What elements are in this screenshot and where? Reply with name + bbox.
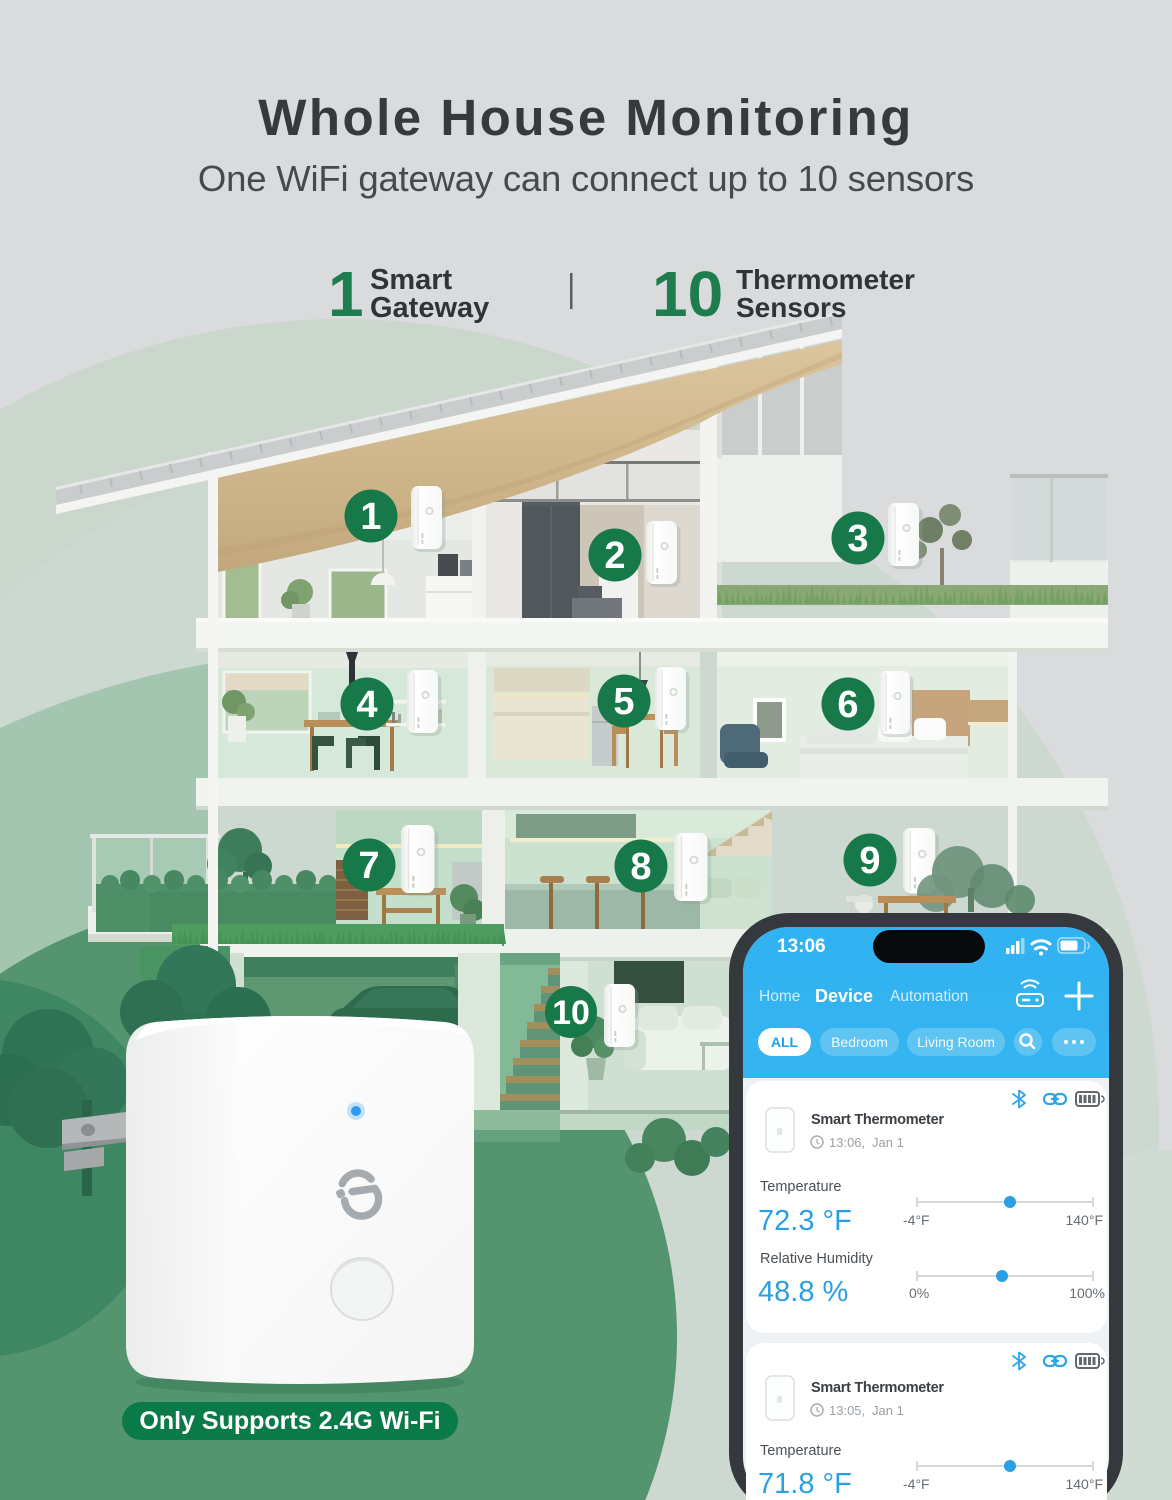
svg-text:4: 4 (356, 684, 377, 726)
svg-text:1: 1 (328, 258, 364, 330)
svg-text:140°F: 140°F (1065, 1476, 1103, 1492)
svg-text:72.3 °F: 72.3 °F (758, 1205, 852, 1237)
svg-text:7: 7 (358, 845, 379, 887)
svg-text:Only Supports 2.4G Wi-Fi: Only Supports 2.4G Wi-Fi (139, 1407, 440, 1435)
svg-text:Thermometer: Thermometer (736, 264, 915, 295)
svg-text:Temperature: Temperature (760, 1179, 841, 1195)
svg-text:5: 5 (613, 681, 634, 723)
svg-text:ALL: ALL (771, 1034, 799, 1050)
svg-text:One WiFi gateway can connect u: One WiFi gateway can connect up to 10 se… (198, 158, 974, 199)
svg-text:Automation: Automation (890, 988, 968, 1005)
svg-text:13:06: 13:06 (777, 936, 826, 957)
svg-text:Whole House Monitoring: Whole House Monitoring (258, 89, 914, 146)
svg-text:Gateway: Gateway (370, 292, 489, 324)
svg-text:3: 3 (847, 518, 868, 560)
svg-text:Temperature: Temperature (760, 1443, 841, 1459)
svg-text:10: 10 (652, 258, 723, 330)
svg-text:100%: 100% (1069, 1285, 1105, 1301)
svg-text:48.8 %: 48.8 % (758, 1276, 848, 1308)
svg-text:9: 9 (859, 840, 880, 882)
svg-text:2: 2 (604, 535, 625, 577)
svg-text:71.8 °F: 71.8 °F (758, 1468, 852, 1500)
svg-text:Living Room: Living Room (917, 1034, 995, 1050)
svg-text:0%: 0% (909, 1285, 929, 1301)
svg-text:Smart Thermometer: Smart Thermometer (811, 1380, 944, 1396)
svg-text:Bedroom: Bedroom (831, 1034, 888, 1050)
svg-text:Smart Thermometer: Smart Thermometer (811, 1112, 944, 1128)
svg-text:10: 10 (552, 994, 590, 1032)
svg-text:Jan 1: Jan 1 (872, 1135, 904, 1150)
svg-text:Jan 1: Jan 1 (872, 1403, 904, 1418)
svg-text:140°F: 140°F (1065, 1212, 1103, 1228)
svg-text:13:05,: 13:05, (829, 1403, 865, 1418)
svg-text:Relative Humidity: Relative Humidity (760, 1251, 874, 1267)
svg-text:8: 8 (630, 846, 651, 888)
svg-text:Home: Home (759, 988, 800, 1005)
svg-text:-4°F: -4°F (903, 1476, 930, 1492)
svg-text:-4°F: -4°F (903, 1212, 930, 1228)
svg-text:13:06,: 13:06, (829, 1135, 865, 1150)
svg-text:1: 1 (360, 496, 381, 538)
svg-text:Sensors: Sensors (736, 292, 847, 323)
svg-text:Device: Device (815, 986, 873, 1006)
svg-text:6: 6 (837, 684, 858, 726)
